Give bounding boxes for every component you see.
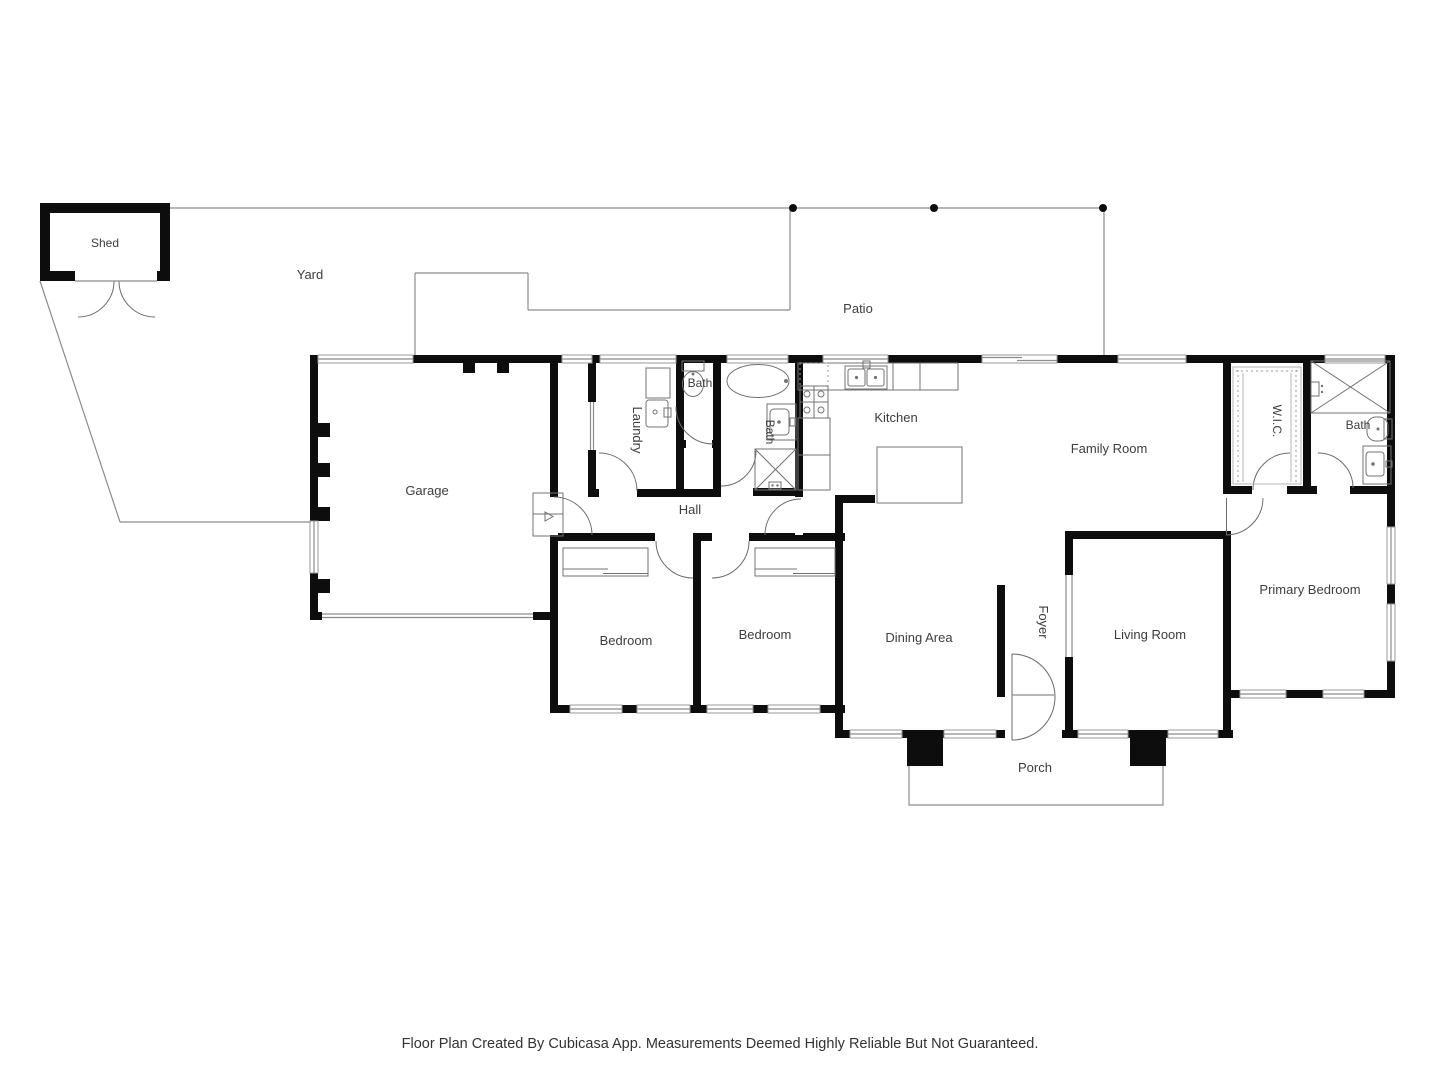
label-bath-hall: Bath (763, 420, 777, 445)
label-foyer: Foyer (1036, 605, 1051, 639)
label-bath-toilet-room: Bath (688, 376, 713, 390)
label-patio: Patio (843, 301, 873, 316)
floor-plan-canvas: Shed Yard Patio Garage Laundry Bath Bath… (0, 0, 1440, 1080)
label-dining-area: Dining Area (885, 630, 953, 645)
label-living-room: Living Room (1114, 627, 1186, 642)
label-primary-bedroom: Primary Bedroom (1259, 582, 1360, 597)
garage-door (322, 612, 533, 620)
footer-disclaimer: Floor Plan Created By Cubicasa App. Meas… (402, 1036, 1039, 1052)
fence-post-dot (789, 204, 797, 212)
label-family-room: Family Room (1071, 441, 1148, 456)
cased-opening (1065, 575, 1073, 657)
label-bath-primary: Bath (1346, 418, 1371, 432)
sliding-door (982, 355, 1057, 363)
floor-plan-page: Shed Yard Patio Garage Laundry Bath Bath… (0, 0, 1440, 1080)
label-yard: Yard (297, 267, 324, 282)
label-bedroom-1: Bedroom (600, 633, 653, 648)
label-laundry: Laundry (630, 407, 645, 454)
label-porch: Porch (1018, 760, 1052, 775)
label-kitchen: Kitchen (874, 410, 917, 425)
label-bedroom-2: Bedroom (739, 627, 792, 642)
pocket-door (588, 402, 596, 450)
label-hall: Hall (679, 502, 702, 517)
label-wic: W.I.C. (1270, 405, 1284, 438)
label-garage: Garage (405, 483, 448, 498)
fence-post-dot (930, 204, 938, 212)
fence-post-dot (1099, 204, 1107, 212)
label-shed: Shed (91, 236, 119, 250)
